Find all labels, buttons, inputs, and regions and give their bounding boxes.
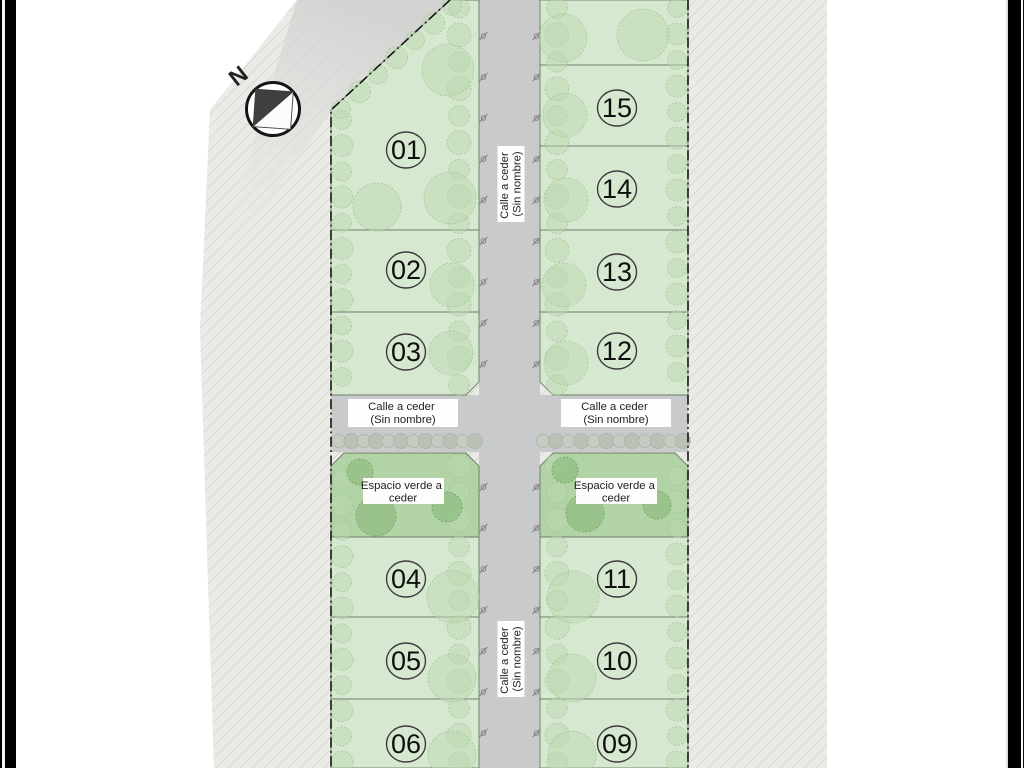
hedge-icon [418,434,433,449]
svg-text:10: 10 [602,646,632,676]
svg-text:05: 05 [391,646,421,676]
hedge-icon [357,435,370,448]
green-space-label-line2: ceder [602,493,630,505]
tree-icon [547,482,568,503]
tree-icon [331,186,353,208]
tree-icon [666,335,688,357]
tree-icon [666,127,688,149]
tree-icon [548,654,596,702]
svg-text:12: 12 [602,336,632,366]
tree-icon [447,454,471,478]
site-plan: Calle a ceder (Sin nombre) Calle a ceder… [0,0,1024,768]
tree-icon [447,23,471,47]
tree-icon [333,521,352,540]
svg-text:02: 02 [391,255,421,285]
tree-icon [333,624,352,643]
tree-icon [449,375,470,396]
green-space-label-line1: Espacio verde a [574,480,656,492]
hedge-icon [664,435,677,448]
tree-icon [666,751,688,768]
tree-icon [331,546,353,568]
hedge-icon [431,435,444,448]
svg-text:06: 06 [391,729,421,759]
lot-01-number: 01 [387,132,426,168]
hedge-icon [650,434,665,449]
tree-icon [333,316,352,335]
svg-text:03: 03 [391,337,421,367]
tree-icon [666,231,688,253]
tree-icon [668,623,687,642]
hedge-icon [333,435,346,448]
tree-icon [333,727,352,746]
street-label-vertical-top: Calle a ceder (Sin nombre) [498,146,525,222]
hedge-icon [393,434,408,449]
svg-text:01: 01 [391,135,421,165]
hedge-icon [548,434,563,449]
hedge-icon [574,434,589,449]
tree-icon [331,700,353,722]
tree-icon [331,751,353,768]
green-space-label-line1: Espacio verde a [361,480,443,492]
tree-icon [668,727,687,746]
lot-06-number: 06 [387,726,426,762]
svg-text:15: 15 [602,93,632,123]
svg-text:13: 13 [602,257,632,287]
street-label-line1: Calle a ceder [499,152,511,219]
tree-icon [668,311,687,330]
tree-icon [666,283,688,305]
tree-icon [406,31,425,50]
hedge-icon [443,434,458,449]
hedge-icon [599,434,614,449]
tree-icon [331,340,353,362]
tree-icon [666,647,688,669]
tree-icon [668,675,687,694]
tree-icon [543,93,587,137]
lot-13-number: 13 [598,254,637,290]
street-label-line1: Calle a ceder [581,401,648,413]
tree-icon [429,331,473,375]
tree-icon [331,135,353,157]
tree-icon [547,698,568,719]
tree-icon [617,9,669,61]
svg-text:04: 04 [391,564,421,594]
tree-icon [332,100,351,119]
svg-text:14: 14 [602,174,632,204]
tree-icon [666,179,688,201]
tree-icon [545,238,569,262]
hedge-icon [638,435,651,448]
lot-12-number: 12 [598,333,637,369]
tree-icon [353,183,401,231]
tree-icon [333,367,352,386]
hedge-icon [625,434,640,449]
lot-10-number: 10 [598,643,637,679]
tree-icon [428,654,476,702]
street-label-line2: (Sin nombre) [512,626,524,692]
tree-icon [668,103,687,122]
street-label: Calle a ceder (Sin nombre) [499,624,524,694]
tree-icon [547,536,568,557]
tree-icon [544,178,588,222]
tree-icon [369,65,388,84]
tree-icon [331,648,353,670]
plan-svg: Calle a ceder (Sin nombre) Calle a ceder… [0,0,1024,768]
tree-icon [668,519,687,538]
svg-text:11: 11 [603,564,631,594]
hedge-icon [587,435,600,448]
tree-icon [333,676,352,695]
tree-icon [668,571,687,590]
tree-icon [666,595,688,617]
tree-icon [545,508,569,532]
hedge-icon [468,434,483,449]
tree-icon [447,131,471,155]
tree-icon [449,536,470,557]
tree-icon [666,543,688,565]
lot-09-number: 09 [598,726,637,762]
tree-icon [668,259,687,278]
tree-icon [333,162,352,181]
hedge-icon [344,434,359,449]
street-label: Calle a ceder (Sin nombre) [581,401,651,426]
lot-03-number: 03 [387,334,426,370]
tree-icon [333,213,352,232]
hedge-icon [456,435,469,448]
tree-icon [668,467,687,486]
hedge-icon [562,435,575,448]
tree-icon [430,263,474,307]
tree-icon [447,238,471,262]
lot-02-number: 02 [387,252,426,288]
lot-15-number: 15 [598,90,637,126]
tree-icon [547,571,599,623]
tree-icon [668,363,687,382]
tree-icon [539,14,587,62]
hedge-icon [369,434,384,449]
tree-icon [547,159,568,180]
tree-icon [427,571,479,623]
hedge-icon [537,435,550,448]
tree-icon [668,207,687,226]
tree-icon [668,51,687,70]
street-label-line2: (Sin nombre) [370,414,436,426]
lot-14-number: 14 [598,171,637,207]
street-label-line1: Calle a ceder [368,401,435,413]
tree-icon [331,289,353,311]
tree-icon [331,597,353,619]
screen-edge-bar-left [0,0,17,768]
tree-icon [331,237,353,259]
green-space-label-line2: ceder [389,493,417,505]
street-label: Calle a ceder (Sin nombre) [499,149,524,219]
tree-icon [542,263,586,307]
street-label: Calle a ceder (Sin nombre) [368,401,438,426]
tree-icon [547,321,568,342]
tree-icon [422,44,474,96]
street-label-vertical-bottom: Calle a ceder (Sin nombre) [498,621,525,697]
lot-04-number: 04 [387,561,426,597]
tree-icon [668,155,687,174]
street-label-line2: (Sin nombre) [583,414,649,426]
hedge-icon [613,435,626,448]
tree-icon [331,494,353,516]
lot-11-number: 11 [598,561,637,597]
street-label-line1: Calle a ceder [499,627,511,694]
tree-icon [666,75,688,97]
lot-05-number: 05 [387,643,426,679]
tree-icon [424,172,476,224]
screen-edge-bar-right [1006,0,1024,768]
tree-icon [666,699,688,721]
tree-icon [333,265,352,284]
tree-icon [333,573,352,592]
tree-icon [449,105,470,126]
street-label-line2: (Sin nombre) [512,151,524,217]
svg-text:09: 09 [602,729,632,759]
tree-icon [544,341,588,385]
